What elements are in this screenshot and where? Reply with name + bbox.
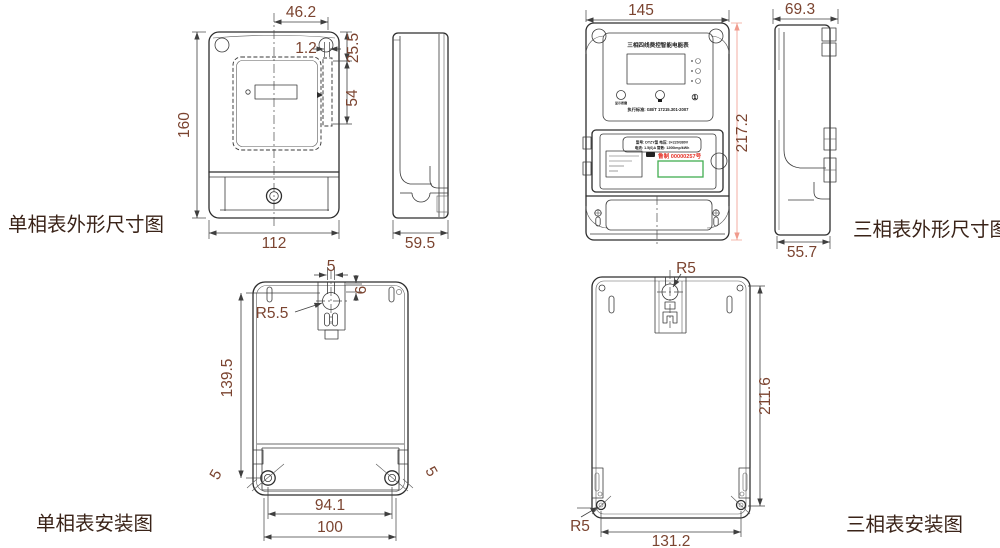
dim-54: 54 [333,61,361,124]
meter-dimension-sheet: 46.2 1.2 25.5 54 160 [0,0,1000,548]
dim-217-2: 217.2 [731,23,751,240]
meter-face-panel: 三相四线费控智能电能表 显示按键 ① 执行标准: GB/T 17215.301-… [603,33,713,121]
three-phase-front-view: 三相四线费控智能电能表 显示按键 ① 执行标准: GB/T 17215.301-… [583,2,751,245]
sp-height-dim: 160 [176,112,193,138]
single-phase-front-view: 46.2 1.2 25.5 54 160 [176,4,362,252]
hinge-tab [583,162,591,175]
sp-slot-offset-dim: 6 [353,286,370,295]
dim-59-5: 59.5 [393,220,448,252]
bottom-hole-left [592,496,611,514]
top-slot-left [609,296,614,313]
display-button [617,91,626,100]
wiring-diagram-box [606,151,642,177]
backlight-button [656,91,665,100]
sp-gap-dim: 1.2 [295,40,317,57]
meter-case-outline [586,23,729,240]
cover-screw [711,153,727,169]
bottom-hole-right [731,496,750,514]
bottom-tab-right [739,468,750,498]
caption-three-phase-install: 三相表安装图 [846,514,963,536]
caption-single-phase-outline: 单相表外形尺寸图 [8,214,164,236]
spec-line2: 电流: 1.5(6)A 常数: 1200imp/kWh [635,145,690,150]
dim-1-2: 1.2 [295,40,341,57]
three-phase-side-view: 69.3 55.7 [773,1,838,261]
captions: 单相表外形尺寸图 三相表外形尺寸图 单相表安装图 三相表安装图 [8,214,1000,536]
sp-hole-left-dim: 5 [207,467,226,483]
dim-r5-top: R5 [673,260,696,287]
sp-seal-height-dim: 54 [344,89,361,107]
nameplate-band: 型号: DTZY型 电压: 3×220/380V 电流: 1.5(6)A 常数:… [583,130,727,192]
dim-55-7: 55.7 [777,236,830,261]
tp-mount-width-dim: 131.2 [652,533,691,548]
hinge-tab [583,137,591,149]
hanging-hook [814,182,830,199]
tp-radius-bottom: R5 [570,518,590,535]
single-phase-mounting-view: 5 6 R5.5 139.5 5 5 94.1 [207,258,441,541]
side-case-outline [393,33,448,218]
standard-line: 执行标准: GB/T 17215.301-2007 [628,106,690,113]
bracket-tab [325,330,338,339]
side-case-outline [775,25,830,235]
barcode-box [658,161,703,177]
corner-screw [599,285,605,291]
tp-radius-top: R5 [676,260,696,277]
dim-46-2: 46.2 [274,4,328,30]
dim-69-3: 69.3 [773,1,838,24]
dim-slot-6: 6 [346,275,370,301]
sp-mount-width-dim: 100 [317,519,343,536]
sp-upper-height-dim: 25.5 [345,33,362,63]
dim-131-2: 131.2 [601,511,741,548]
spec-line1: 型号: DTZY型 电压: 3×220/380V [636,140,689,145]
bottom-tab-left [592,468,603,498]
led-indicator [696,59,701,64]
dim-r5-bottom: R5 [570,507,598,535]
sp-depth-dim: 59.5 [405,235,435,252]
dim-145: 145 [586,2,729,22]
dim-160: 160 [176,32,206,218]
sp-slot-width-dim: 5 [327,258,336,275]
top-slot-right [727,296,732,313]
sp-mount-height-dim: 139.5 [219,359,236,398]
corner-slot-left [267,287,272,302]
top-mount-block [822,28,836,56]
sp-hole-right-dim: 5 [421,464,440,480]
corner-screw [737,285,743,291]
seal-screw-right [712,209,720,226]
caption-three-phase-outline: 三相表外形尺寸图 [853,219,1000,241]
sp-keyhole-radius: R5.5 [256,305,289,322]
display-button-label: 显示按键 [615,100,627,105]
seal-screw-left [594,209,602,226]
seal-strip [317,58,332,126]
corner-slot-right [389,287,394,302]
class-mark: ① [691,93,698,102]
dim-r5-5: R5.5 [256,303,322,322]
led-indicator [696,69,701,74]
tp-height-dim: 217.2 [734,114,751,153]
led-indicator [696,79,701,84]
tp-depth-bottom-dim: 55.7 [787,244,817,261]
three-phase-mounting-view: R5 211.6 R5 131.2 [570,260,774,548]
seal-mark [646,152,655,157]
sp-width-dim: 112 [262,235,287,252]
approval-number: 鲁制 00000257号 [658,152,702,160]
side-screw-bulge [412,193,430,202]
meter-title: 三相四线费控智能电能表 [627,41,689,49]
tp-width-dim: 145 [628,2,654,19]
meter-cover-window [233,57,321,150]
tp-depth-top-dim: 69.3 [785,1,815,18]
lcd-display [627,54,685,84]
terminal-block-area [253,444,408,490]
dimension-drawing-canvas: 46.2 1.2 25.5 54 160 [0,0,1000,548]
single-phase-side-view: 59.5 [393,33,448,252]
back-plate-outline [592,277,750,518]
sp-hole-span-dim: 94.1 [315,497,345,514]
hanging-bracket [655,270,686,333]
lcd-display [246,85,297,99]
sp-top-width-dim: 46.2 [286,4,316,21]
hanging-bracket [316,270,347,339]
terminal-cover [586,196,729,245]
caption-single-phase-install: 单相表安装图 [36,513,153,535]
dim-211-6: 211.6 [748,286,774,506]
tp-mount-height-dim: 211.6 [757,377,774,415]
